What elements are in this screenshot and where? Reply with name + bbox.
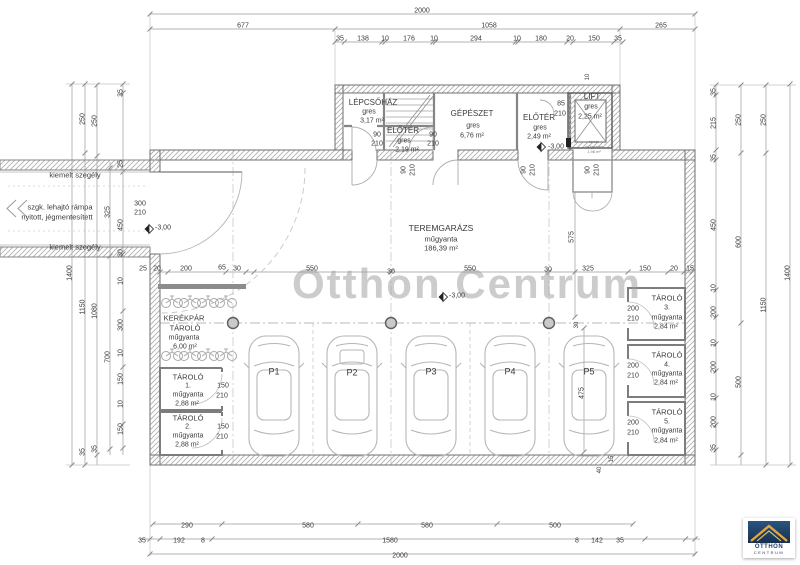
dim-label: 40 [597, 467, 603, 474]
room-label-tarolo-2: TÁROLÓ [173, 414, 204, 422]
dim-label: 2,84 m² [654, 324, 678, 331]
dim-label: 2000 [392, 553, 408, 560]
dim-label: 10 [381, 36, 389, 43]
dim-label: műgyanta [425, 235, 458, 243]
logo-card: OTTHON CENTRUM [743, 518, 795, 558]
floor-plan-canvas: Otthon Centrum 2000677105826535138101761… [0, 0, 800, 565]
dim-label: 550 [306, 266, 318, 273]
door-size-label: 90 [373, 132, 381, 139]
room-label-tarolo-5: TÁROLÓ [652, 408, 683, 416]
dim-label: 35 [614, 36, 622, 43]
parking-stall-label: P4 [504, 368, 515, 377]
dim-label: 325 [582, 266, 594, 273]
dim-label: 30 [387, 269, 395, 276]
dim-label: 35 [616, 538, 624, 545]
dim-label: 8 [201, 538, 205, 545]
dim-label: 6,00 m² [173, 344, 197, 351]
dim-label: 35 [711, 444, 718, 452]
room-label-gepeszet: GÉPÉSZET [451, 110, 494, 118]
dim-label: 325 [105, 206, 112, 218]
dim-label: 65 [218, 265, 226, 272]
dim-label: gres [533, 125, 547, 132]
parking-stall-label: P2 [346, 369, 357, 378]
room-label-eloter-1: ELŐTÉR [387, 127, 419, 135]
dim-label: 200 [711, 416, 718, 428]
dim-label: 200 [180, 266, 192, 273]
door-size-label: 200 [627, 306, 639, 313]
room-label-eloter-2: ELŐTÉR [523, 114, 555, 122]
dim-label: 10 [118, 277, 125, 285]
dim-label: 15 [686, 266, 694, 273]
dim-label: műgyanta [652, 315, 683, 322]
dim-label: 1150 [761, 297, 768, 312]
dim-label: 700 [105, 351, 112, 363]
dim-label: műgyanta [652, 371, 683, 378]
door-size-label: 210 [530, 164, 537, 176]
dim-label: 450 [711, 219, 718, 231]
dim-label: 1400 [67, 265, 74, 281]
logo-subtitle: CENTRUM [754, 550, 785, 555]
door-size-label: 210 [594, 164, 601, 176]
dim-label: 35 [711, 154, 718, 162]
level-label: -3,00 [548, 144, 564, 151]
dim-label: 215 [711, 117, 718, 129]
door-size-label: 200 [627, 420, 639, 427]
door-size-label: 85 [557, 101, 565, 108]
door-size-label: 300 [134, 201, 146, 208]
dim-label: gres [466, 123, 480, 130]
room-label-teremgaraz: TEREMGARÁZS [409, 224, 474, 233]
dim-label: 10 [513, 36, 521, 43]
dim-label: 677 [237, 23, 249, 30]
dim-label: 150 [588, 36, 600, 43]
dim-label: 250 [92, 115, 99, 127]
dim-label: 1400 [785, 265, 792, 281]
dim-label: 10 [711, 339, 718, 347]
dim-label: 20 [153, 266, 161, 273]
dim-label: 250 [761, 114, 768, 126]
dim-label: 500 [549, 523, 561, 530]
door-size-label: 200 [627, 363, 639, 370]
dim-label: 500 [736, 376, 743, 388]
door-size-label: 210 [427, 141, 439, 148]
door-size-label: 90 [521, 166, 528, 174]
dim-label: 150 [118, 423, 125, 435]
door-size-label: 90 [585, 166, 592, 174]
door-size-label: 150 [217, 383, 229, 390]
dim-label: 2. [185, 424, 191, 431]
dim-label: 35 [80, 448, 87, 456]
dim-label: műgyanta [173, 433, 204, 440]
dim-label: 294 [470, 36, 482, 43]
dim-label: 580 [421, 523, 433, 530]
dim-label: 3,17 m² [360, 118, 384, 125]
dim-label: 250 [80, 113, 87, 125]
dim-label: 186,39 m² [424, 244, 458, 252]
dim-label: 35 [92, 445, 99, 453]
dim-label: 10 [711, 284, 718, 292]
parking-stall-label: P3 [425, 368, 436, 377]
dim-label: 200 [711, 306, 718, 318]
door-size-label: 210 [371, 141, 383, 148]
dim-label: 10 [430, 36, 438, 43]
door-size-label: 210 [216, 434, 228, 441]
dim-label: 10 [711, 393, 718, 401]
dim-label: 30 [233, 266, 241, 273]
dim-label: 142 [591, 538, 603, 545]
room-label-kerekpar-tarolo: KERÉKPÁR [164, 314, 205, 322]
dim-label: 1580 [382, 538, 398, 545]
dim-label: 35 [336, 36, 344, 43]
dim-label: 1,98 m² [587, 150, 601, 154]
dim-label: 6,76 m² [460, 133, 484, 140]
dim-label: 10 [118, 349, 125, 357]
dim-label: 300 [118, 319, 125, 331]
dim-label: 35 [711, 88, 718, 96]
dim-label: 2,25 m² [578, 114, 602, 121]
room-label-lift: LIFT [584, 93, 600, 101]
dim-label: 30 [118, 249, 125, 257]
dim-label: 5. [664, 419, 670, 426]
dim-label: 1080 [92, 303, 99, 319]
logo-otthon-centrum: OTTHON CENTRUM [743, 518, 795, 558]
room-label-tarolo-4: TÁROLÓ [652, 351, 683, 359]
annotation-label: nyitott, jégmentesített [21, 213, 92, 221]
door-size-label: 210 [410, 164, 417, 176]
level-label: -3,00 [449, 293, 465, 300]
dim-label: 200 [711, 361, 718, 373]
dim-label: 580 [302, 523, 314, 530]
dim-label: 176 [403, 36, 415, 43]
door-size-label: 210 [216, 393, 228, 400]
dim-label: 20 [566, 36, 574, 43]
annotation-label: kiemelt szegély [49, 243, 100, 251]
dim-label: 8 [575, 538, 579, 545]
dim-label: 25 [118, 160, 125, 168]
dim-label: 35 [118, 89, 125, 97]
dim-label: 10 [585, 74, 591, 81]
dim-label: 2,84 m² [654, 380, 678, 387]
dim-label: műgyanta [173, 392, 204, 399]
parking-stall-label: P5 [583, 368, 594, 377]
dim-label: 250 [736, 114, 743, 126]
dim-label: 265 [655, 23, 667, 30]
dim-label: 3. [664, 305, 670, 312]
level-label: -3,00 [155, 225, 171, 232]
dim-label: 2,88 m² [175, 442, 199, 449]
door-size-label: 210 [134, 210, 146, 217]
dim-label: 150 [118, 373, 125, 385]
dim-label: 192 [173, 538, 185, 545]
dim-label: TÁROLÓ [170, 324, 201, 332]
dim-label: 10 [118, 400, 125, 408]
dim-label: gres [584, 104, 598, 111]
dim-label: gres [397, 138, 411, 145]
dim-label: 20 [670, 266, 678, 273]
dim-label: 1. [185, 383, 191, 390]
dim-label: 450 [118, 219, 125, 231]
dim-label: 290 [181, 523, 193, 530]
dim-label: 575 [569, 231, 576, 243]
dim-label: 15 [609, 456, 615, 463]
dim-label: 25 [139, 266, 147, 273]
dim-label: 180 [535, 36, 547, 43]
dim-label: 600 [736, 236, 743, 248]
dim-label: műgyanta [652, 428, 683, 435]
dim-label: 4. [664, 362, 670, 369]
dim-label: műgyanta [169, 335, 200, 342]
annotation-label: szgk. lehajtó rámpa [27, 203, 92, 211]
dim-label: 2,88 m² [175, 401, 199, 408]
room-label-tarolo-3: TÁROLÓ [652, 294, 683, 302]
dim-label: 1150 [80, 299, 87, 314]
door-size-label: 90 [401, 166, 408, 174]
dim-label: 1058 [481, 23, 497, 30]
room-label-lepcsohaz: LÉPCSŐHÁZ [349, 99, 397, 107]
door-size-label: 90 [429, 132, 437, 139]
door-size-label: 150 [217, 424, 229, 431]
annotation-label: kiemelt szegély [49, 171, 100, 179]
dim-label: 550 [464, 266, 476, 273]
dim-label: gres [362, 109, 376, 116]
labels-layer: 2000677105826535138101761029410180201503… [0, 0, 800, 565]
dim-label: 2,49 m² [527, 134, 551, 141]
parking-stall-label: P1 [268, 368, 279, 377]
dim-label: 475 [579, 387, 586, 399]
dim-label: 150 [639, 266, 651, 273]
room-label-tarolo-1: TÁROLÓ [173, 373, 204, 381]
door-size-label: 210 [554, 111, 566, 118]
dim-label: 138 [357, 36, 369, 43]
door-size-label: 210 [627, 316, 639, 323]
dim-label: 2,19 m² [395, 147, 419, 154]
dim-label: 2,84 m² [654, 438, 678, 445]
logo-roof-icon [748, 521, 790, 543]
dim-label: 2000 [414, 8, 430, 15]
door-size-label: 210 [627, 430, 639, 437]
dim-label: 35 [138, 538, 146, 545]
dim-label: 30 [544, 267, 552, 274]
door-size-label: 210 [627, 373, 639, 380]
dim-label: 30 [574, 322, 580, 329]
